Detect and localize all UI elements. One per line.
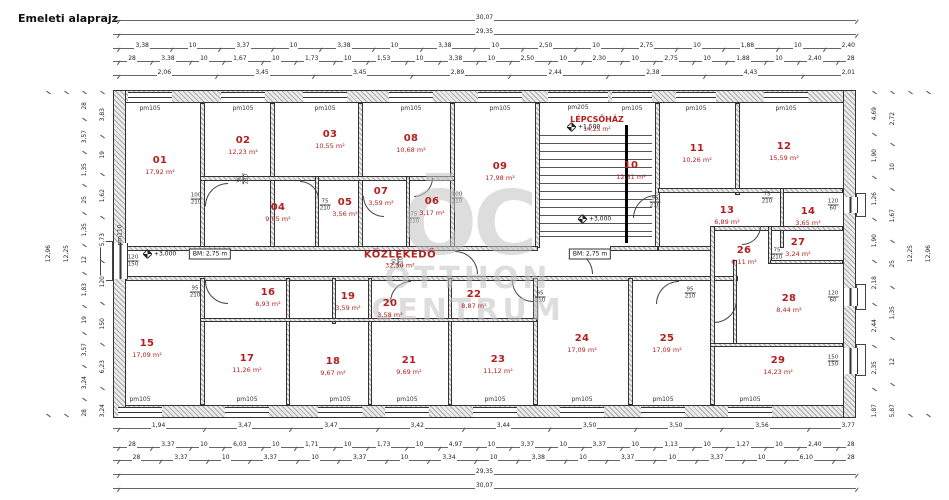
dim-col-right-rooms: 4,691,901,261,902,182,442,351,87 — [868, 90, 880, 418]
window — [221, 92, 265, 103]
dim-value: 3,37 — [263, 454, 278, 461]
room-label-01: 0117,92 m² — [145, 148, 175, 176]
dim-value: 3,38 — [448, 55, 463, 62]
door-size-label: 75210 — [320, 198, 331, 211]
window-label: pm105 — [775, 105, 796, 112]
level-marker-icon — [578, 215, 587, 224]
dim-value: 10 — [692, 42, 702, 49]
dim-tick — [82, 304, 87, 308]
window-label: pm105 — [232, 105, 253, 112]
dim-tick — [872, 387, 877, 391]
dim-col-right-detail: 2,72101,67251,35125,87 — [886, 90, 898, 418]
dim-value: 3,38 — [437, 42, 452, 49]
dim-tick — [872, 133, 877, 137]
door-size-label: 100210 — [452, 191, 463, 204]
dim-value: 3,38 — [134, 42, 149, 49]
dim-value: 30,07 — [475, 482, 494, 489]
dim-value: 6,23 — [99, 359, 106, 374]
dim-value: 2,40 — [807, 441, 822, 448]
room-label-06: 063,17 m² — [419, 189, 444, 217]
dim-tick — [100, 301, 105, 305]
dim-value: 10 — [199, 441, 209, 448]
dim-value: 29,35 — [475, 468, 494, 475]
dim-value: 10 — [400, 454, 410, 461]
door-arc — [455, 251, 478, 274]
window-label: pm105 — [129, 396, 150, 403]
dim-value: 28 — [846, 454, 856, 461]
room-label-07: 073,59 m² — [368, 179, 393, 207]
window-label: pm105 — [400, 105, 421, 112]
dim-tick — [82, 184, 87, 188]
wall-partition — [200, 318, 537, 322]
dim-value: 3,37 — [592, 441, 607, 448]
dim-value: 10 — [487, 55, 497, 62]
room-label-18: 189,67 m² — [320, 349, 345, 377]
dim-tick — [82, 91, 87, 95]
dim-value: 2,75 — [663, 55, 678, 62]
dim-tick — [376, 427, 380, 432]
level-marker-icon — [143, 250, 152, 259]
dim-tick — [117, 74, 121, 79]
dim-value: 10 — [271, 441, 281, 448]
dim-value: 10 — [667, 454, 677, 461]
dim-value: 2,38 — [645, 69, 660, 76]
dim-row-top-detail: 283,38101,67101,73101,53103,38102,50102,… — [113, 51, 856, 62]
window-label: pm105 — [685, 105, 706, 112]
room-label-20: 203,58 m² — [377, 291, 402, 319]
door-arc — [656, 281, 679, 304]
dim-value: 10 — [630, 55, 640, 62]
dim-tick — [634, 427, 638, 432]
dim-value: 1,27 — [735, 441, 750, 448]
window-label: pm105 — [621, 105, 642, 112]
dim-value: 12,25 — [63, 244, 70, 263]
dim-value: 3,38 — [531, 454, 546, 461]
window — [473, 407, 517, 418]
dim-value: 10 — [490, 42, 500, 49]
door-size-label: 90210 — [236, 174, 249, 185]
dim-value: 12,25 — [907, 244, 914, 263]
dim-value: 10 — [343, 441, 353, 448]
window-label-left: pm110 — [117, 224, 124, 245]
door-size-label: 95210 — [190, 285, 201, 298]
dim-value: 3,77 — [841, 422, 856, 429]
dim-value: 3,34 — [441, 454, 456, 461]
dim-col-left-overall: 12,96 — [42, 90, 54, 418]
room-label-04: 049,05 m² — [265, 195, 290, 223]
dim-value: 29,35 — [475, 28, 494, 35]
wall-partition — [710, 343, 843, 347]
dim-tick — [703, 74, 707, 79]
room-label-10: 1012,31 m² — [616, 153, 646, 181]
room-label-03: 0310,55 m² — [315, 122, 345, 150]
dim-value: 12 — [889, 357, 896, 367]
dim-value: 10 — [390, 42, 400, 49]
dim-value: 10 — [630, 441, 640, 448]
dim-value: 150 — [99, 317, 106, 330]
dim-tick — [100, 260, 105, 264]
dim-value: 25 — [889, 259, 896, 269]
dim-value: 1,62 — [99, 188, 106, 203]
window — [843, 288, 858, 306]
dim-tick — [872, 345, 877, 349]
bm-height-box-left: BM: 2,75 m — [189, 249, 231, 260]
door-size-label: 75210 — [762, 191, 773, 204]
dim-value: 2,30 — [592, 55, 607, 62]
window-label: pm105 — [329, 396, 350, 403]
room-label-29: 2914,23 m² — [763, 348, 793, 376]
dim-col-left-rooms: 3,83191,625,731201506,233,24 — [96, 90, 108, 418]
dim-value: 10 — [487, 441, 497, 448]
dim-value: 3,38 — [336, 42, 351, 49]
wall-stair-right — [655, 103, 660, 248]
window — [118, 407, 162, 418]
dim-value: 2,72 — [889, 111, 896, 126]
dim-value: 28 — [127, 55, 137, 62]
window-label: pm105 — [484, 396, 505, 403]
dim-value: 3,83 — [99, 107, 106, 122]
level-marker-stair-lower: +3,000 — [578, 215, 611, 224]
dim-value: 10 — [702, 441, 712, 448]
dim-row-top-openings: 3,38103,37103,38103,38102,50102,75101,88… — [113, 38, 856, 49]
dim-value: 3,37 — [160, 441, 175, 448]
dim-value: 1,87 — [871, 403, 878, 418]
room-label-27: 273,24 m² — [785, 230, 810, 258]
dim-col-right-shell: 12,25 — [904, 90, 916, 418]
dim-tick — [100, 387, 105, 391]
wall-corridor-top — [610, 246, 658, 251]
dim-value: 2,40 — [841, 42, 856, 49]
dim-tick — [720, 427, 724, 432]
dim-value: 10 — [578, 454, 588, 461]
room-label-14: 143,65 m² — [795, 199, 820, 227]
dim-value: 10 — [558, 441, 568, 448]
dim-value: 10 — [489, 454, 499, 461]
page-title: Emeleti alaprajz — [18, 12, 118, 25]
window — [548, 92, 608, 103]
dim-tick — [807, 427, 811, 432]
dim-value: 3,37 — [352, 454, 367, 461]
dim-value: 12,96 — [925, 244, 932, 263]
dim-tick — [117, 487, 121, 492]
wall-partition — [315, 176, 319, 248]
window — [560, 407, 604, 418]
room-label-26: 266,11 m² — [731, 238, 756, 266]
dim-tick — [46, 91, 51, 95]
dim-value: 10 — [415, 55, 425, 62]
dim-row-bottom-shell: 29,35 — [113, 464, 856, 475]
dim-tick — [872, 302, 877, 306]
dim-tick — [289, 427, 293, 432]
dim-value: 2,18 — [871, 275, 878, 290]
dim-tick — [548, 427, 552, 432]
window-label: pm105 — [139, 105, 160, 112]
dim-value: 1,67 — [232, 55, 247, 62]
dim-value: 3,47 — [323, 422, 338, 429]
door-size-label: 100210 — [191, 192, 202, 205]
dim-value: 6,10 — [799, 454, 814, 461]
room-label-15: 1517,09 m² — [132, 331, 162, 359]
dim-value: 10 — [591, 42, 601, 49]
dim-col-right-overall: 12,96 — [922, 90, 934, 418]
wall-partition — [286, 278, 290, 405]
room-label-22: 228,87 m² — [461, 282, 486, 310]
dim-value: 10 — [793, 42, 803, 49]
dim-value: 28 — [846, 441, 856, 448]
dim-value: 12,96 — [45, 244, 52, 263]
dim-tick — [82, 332, 87, 336]
dim-tick — [100, 134, 105, 138]
dim-value: 2,50 — [538, 42, 553, 49]
dim-row-top-overall: 30,07 — [113, 10, 856, 21]
dim-value: 3,38 — [160, 55, 175, 62]
dim-tick — [312, 74, 316, 79]
room-label-17: 1711,26 m² — [232, 346, 262, 374]
dim-tick — [801, 74, 805, 79]
dim-tick — [890, 337, 895, 341]
dim-value: 10 — [271, 55, 281, 62]
dim-value: 10 — [221, 454, 231, 461]
window — [843, 197, 858, 213]
floor-plan-page: Emeleti alaprajz 30,07 29,35 3,38103,371… — [0, 0, 949, 500]
wall-partition — [200, 278, 205, 405]
dim-value: 19 — [81, 315, 88, 325]
dim-tick — [872, 260, 877, 264]
dim-tick — [872, 218, 877, 222]
dim-tick — [605, 74, 609, 79]
window — [113, 243, 128, 279]
door-size-label: 95210 — [685, 286, 696, 299]
dim-value: 2,44 — [871, 318, 878, 333]
dim-tick — [890, 383, 895, 387]
dim-value: 4,97 — [448, 441, 463, 448]
room-label-09: 0917,98 m² — [485, 154, 515, 182]
level-marker-icon — [567, 123, 576, 132]
dim-tick — [410, 74, 414, 79]
dim-value: 3,50 — [582, 422, 597, 429]
window — [318, 407, 362, 418]
dim-value: 28 — [846, 55, 856, 62]
dim-tick — [64, 414, 69, 418]
dim-row-bottom-detail: 283,37106,03101,71101,73104,97103,37103,… — [113, 437, 856, 448]
dim-tick — [82, 365, 87, 369]
dim-value: 10 — [310, 454, 320, 461]
dim-tick — [203, 427, 207, 432]
dim-tick — [82, 151, 87, 155]
dim-value: 3,57 — [81, 342, 88, 357]
dim-value: 10 — [289, 42, 299, 49]
dim-tick — [855, 487, 859, 492]
stair-stringer — [625, 125, 628, 243]
dim-value: 10 — [774, 55, 784, 62]
dim-value: 1,88 — [740, 42, 755, 49]
dim-value: 2,75 — [639, 42, 654, 49]
room-label-25: 2517,09 m² — [652, 326, 682, 354]
dim-value: 10 — [188, 42, 198, 49]
dim-value: 2,06 — [157, 69, 172, 76]
window-label: pm105 — [739, 396, 760, 403]
door-size-label: 95210 — [650, 195, 661, 208]
dim-tick — [926, 91, 931, 95]
dim-value: 3,56 — [754, 422, 769, 429]
wall-partition — [448, 278, 452, 405]
dim-value: 19 — [99, 150, 106, 160]
door-size-label: 95210 — [535, 290, 546, 303]
dim-value: 3,45 — [352, 69, 367, 76]
dim-value: 10 — [889, 162, 896, 172]
dim-value: 1,94 — [151, 422, 166, 429]
window-label: pm105 — [396, 396, 417, 403]
dim-value: 12 — [81, 255, 88, 265]
wall-partition — [735, 103, 740, 195]
dim-value: 3,50 — [668, 422, 683, 429]
wall-partition — [780, 188, 784, 248]
window — [303, 92, 347, 103]
level-marker-corridor: +3,000 — [143, 250, 176, 259]
window — [612, 92, 652, 103]
dim-value: 1,90 — [871, 233, 878, 248]
dim-tick — [82, 244, 87, 248]
window — [764, 92, 808, 103]
dim-value: 4,69 — [871, 106, 878, 121]
dim-tick — [890, 285, 895, 289]
door-arc — [512, 281, 533, 302]
wall-partition — [368, 278, 372, 405]
dim-value: 10 — [558, 55, 568, 62]
dim-value: 1,83 — [81, 282, 88, 297]
level-marker-stair-upper: +1,500 — [567, 123, 600, 132]
dim-tick — [872, 91, 877, 95]
dim-value: 3,37 — [235, 42, 250, 49]
dim-value: 1,35 — [81, 162, 88, 177]
room-label-13: 136,89 m² — [714, 198, 739, 226]
dim-row-bottom-overall: 30,07 — [113, 478, 856, 489]
window-label: pm105 — [314, 105, 335, 112]
dim-tick — [64, 91, 69, 95]
dim-value: 1,35 — [81, 222, 88, 237]
dim-tick — [508, 74, 512, 79]
window-label: pm105 — [571, 396, 592, 403]
room-label-05: 053,56 m² — [332, 190, 357, 218]
wall-corridor-top — [658, 246, 713, 251]
dim-tick — [82, 118, 87, 122]
dim-tick — [100, 216, 105, 220]
dim-value: 5,73 — [99, 232, 106, 247]
window — [478, 92, 522, 103]
dim-tick — [100, 343, 105, 347]
dim-value: 2,50 — [520, 55, 535, 62]
wall-corridor-top — [126, 246, 538, 251]
dim-tick — [872, 175, 877, 179]
door-size-label: 75210 — [772, 247, 783, 260]
wall-partition — [658, 188, 843, 193]
dim-tick — [100, 172, 105, 176]
room-label-08: 0810,68 m² — [396, 126, 426, 154]
dim-tick — [82, 271, 87, 275]
dim-value: 3,37 — [520, 441, 535, 448]
dim-value: 10 — [757, 454, 767, 461]
window — [676, 92, 716, 103]
window — [128, 92, 172, 103]
dim-tick — [908, 414, 913, 418]
dim-value: 1,88 — [735, 55, 750, 62]
window — [843, 348, 858, 374]
dim-row-top-rooms: 2,063,453,452,892,442,384,432,01 — [113, 65, 856, 76]
dim-tick — [890, 188, 895, 192]
window — [728, 407, 772, 418]
dim-value: 1,67 — [889, 208, 896, 223]
dim-value: 10 — [415, 441, 425, 448]
room-label-02: 0212,23 m² — [228, 128, 258, 156]
wall-partition — [628, 278, 633, 405]
door-size-label: 75210 — [409, 211, 420, 224]
wall-partition — [770, 260, 843, 264]
dim-row-top-shell: 29,35 — [113, 24, 856, 35]
dim-tick — [215, 74, 219, 79]
room-label-24: 2417,09 m² — [567, 326, 597, 354]
window — [641, 407, 685, 418]
dim-value: 1,73 — [304, 55, 319, 62]
dim-row-bottom-rooms: 1,943,473,473,423,443,503,503,563,77 — [113, 418, 856, 429]
dim-value: 3,47 — [237, 422, 252, 429]
room-label-19: 193,59 m² — [335, 284, 360, 312]
dim-tick — [82, 398, 87, 402]
dim-tick — [462, 427, 466, 432]
dim-value: 5,87 — [889, 403, 896, 418]
dim-value: 1,71 — [304, 441, 319, 448]
dim-value: 120 — [99, 275, 106, 288]
corridor-label: KÖZLEKEDŐ32,50 m² — [364, 243, 436, 270]
dim-col-left-detail: 283,571,35251,35121,83193,573,2428 — [78, 90, 90, 418]
dim-tick — [890, 239, 895, 243]
dim-value: 10 — [343, 55, 353, 62]
dim-tick — [117, 427, 121, 432]
dim-value: 28 — [132, 454, 142, 461]
dim-value: 1,13 — [663, 441, 678, 448]
window — [385, 407, 429, 418]
window-label: pm105 — [236, 396, 257, 403]
dim-value: 10 — [774, 441, 784, 448]
window-label: pm105 — [652, 396, 673, 403]
window — [389, 92, 433, 103]
window-size-label: 12060 — [828, 198, 839, 211]
dim-value: 1,90 — [871, 148, 878, 163]
door-arc — [205, 281, 228, 304]
room-label-16: 168,93 m² — [255, 280, 280, 308]
dim-value: 3,42 — [410, 422, 425, 429]
dim-value: 3,44 — [496, 422, 511, 429]
wall-partition — [710, 226, 843, 231]
window — [225, 407, 269, 418]
room-label-11: 1110,26 m² — [682, 136, 712, 164]
dim-value: 3,37 — [173, 454, 188, 461]
dim-value: 1,35 — [889, 305, 896, 320]
dim-value: 2,01 — [841, 69, 856, 76]
dim-tick — [890, 142, 895, 146]
room-label-12: 1215,59 m² — [769, 134, 799, 162]
window-size-label: 150150 — [828, 354, 839, 367]
dim-tick — [82, 211, 87, 215]
dim-value: 3,37 — [709, 454, 724, 461]
window-label: pm105 — [489, 105, 510, 112]
dim-value: 1,26 — [871, 191, 878, 206]
dim-value: 2,40 — [807, 55, 822, 62]
dim-value: 25 — [81, 195, 88, 205]
stair-landing — [540, 236, 652, 237]
dim-tick — [46, 414, 51, 418]
dim-value: 10 — [702, 55, 712, 62]
dim-value: 3,45 — [254, 69, 269, 76]
